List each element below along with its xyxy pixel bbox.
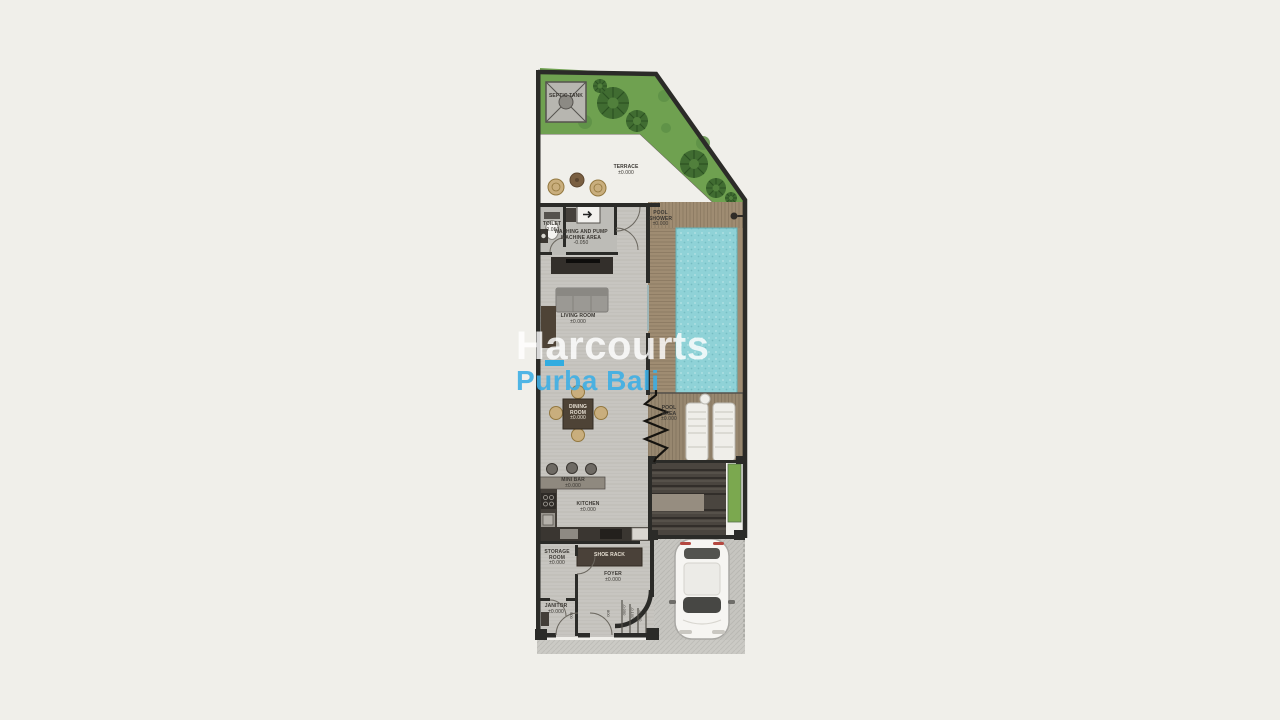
car-tail-light xyxy=(713,542,724,545)
label-foyer: FOYER ±0.000 xyxy=(594,572,632,583)
label-storage-room: STORAGE ROOM ±0.000 xyxy=(539,550,575,567)
terrace-chair xyxy=(590,180,606,196)
car-rear-window xyxy=(684,548,720,559)
room-level: ±0.000 xyxy=(548,484,598,490)
bar-stool xyxy=(586,464,597,475)
room-level: ±0.000 xyxy=(604,171,648,177)
level-step-1: -0.050 xyxy=(622,604,626,615)
label-septic-tank: SEPTIC TANK xyxy=(547,94,585,100)
bush xyxy=(661,123,671,133)
room-name: SHOE RACK xyxy=(579,553,640,559)
label-washing-area: WASHING AND PUMP MACHINE AREA -0.050 xyxy=(552,230,610,247)
stair-landing xyxy=(652,494,704,511)
palm-tree xyxy=(680,150,708,178)
bar-stool xyxy=(547,464,558,475)
car-headlight xyxy=(679,630,692,634)
room-level: ±0.000 xyxy=(656,417,682,423)
sofa xyxy=(556,288,608,312)
label-pool-shower: POOL SHOWER ±0.000 xyxy=(647,211,674,228)
terrace-furniture xyxy=(548,173,606,196)
label-dining-room: DINING ROOM ±0.000 xyxy=(564,405,592,422)
grass-strip xyxy=(728,464,741,522)
palm-tree xyxy=(626,110,648,132)
level-step-3: -0.150 xyxy=(638,610,642,621)
car-tail-light xyxy=(680,542,691,545)
palm-tree xyxy=(706,178,726,198)
car-windshield xyxy=(683,597,721,613)
car-mirror xyxy=(669,600,676,604)
watermark-purba-bali: Purba Bali xyxy=(516,367,659,395)
room-level: ±0.000 xyxy=(594,578,632,584)
floorplan-canvas: SEPTIC TANK TERRACE ±0.000 TOILET -0.050… xyxy=(0,0,1280,720)
tv-console xyxy=(551,257,613,274)
swimming-pool xyxy=(676,228,737,393)
level-step-2: -0.100 xyxy=(630,607,634,618)
dim-door-right: 800 xyxy=(606,610,610,617)
room-level: ±0.000 xyxy=(564,416,592,422)
septic-tank xyxy=(546,82,586,122)
sun-lounger xyxy=(686,403,708,461)
driveway-strip xyxy=(537,640,745,654)
room-level: -0.050 xyxy=(552,241,610,247)
label-shoe-rack: SHOE RACK xyxy=(579,553,640,559)
terrace-chair xyxy=(548,179,564,195)
palm-tree xyxy=(593,79,607,93)
label-mini-bar: MINI BAR ±0.000 xyxy=(548,478,598,489)
label-terrace: TERRACE ±0.000 xyxy=(604,165,648,176)
label-kitchen: KITCHEN ±0.000 xyxy=(568,502,608,513)
car-mirror xyxy=(728,600,735,604)
room-name: SEPTIC TANK xyxy=(547,94,585,100)
sun-lounger xyxy=(713,403,735,461)
label-pool-area: POOL AREA ±0.000 xyxy=(656,406,682,423)
bar-stool xyxy=(567,463,578,474)
washing-machine xyxy=(566,206,600,223)
room-level: ±0.000 xyxy=(539,561,575,567)
room-level: ±0.000 xyxy=(647,222,674,228)
stove xyxy=(541,493,556,509)
car-roof xyxy=(684,563,720,595)
dim-door-left: 900 xyxy=(569,612,573,619)
car xyxy=(669,539,735,639)
side-table xyxy=(700,394,710,404)
room-level: ±0.000 xyxy=(568,508,608,514)
car-headlight xyxy=(712,630,725,634)
staircase xyxy=(652,462,741,537)
